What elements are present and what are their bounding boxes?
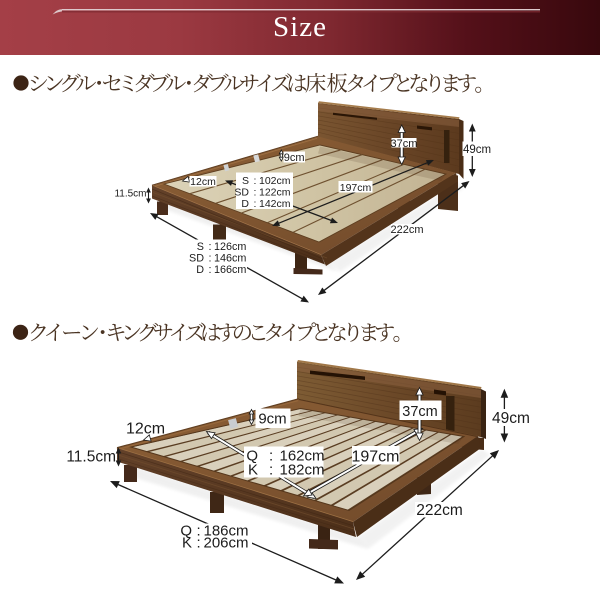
svg-text:K: K xyxy=(248,462,258,479)
svg-text:166cm: 166cm xyxy=(214,264,246,276)
svg-text:197cm: 197cm xyxy=(351,449,399,466)
svg-text:S: S xyxy=(242,175,249,187)
svg-text:SD: SD xyxy=(189,252,204,264)
svg-text:102cm: 102cm xyxy=(259,175,291,187)
svg-text:D: D xyxy=(241,198,249,210)
svg-text:9cm: 9cm xyxy=(258,411,286,428)
svg-text:37cm: 37cm xyxy=(391,138,418,150)
svg-text:49cm: 49cm xyxy=(463,144,491,156)
svg-text::: : xyxy=(197,535,201,552)
svg-text::: : xyxy=(209,264,212,276)
svg-text:12cm: 12cm xyxy=(126,421,165,438)
svg-text:9cm: 9cm xyxy=(284,152,305,164)
svg-text:197cm: 197cm xyxy=(340,182,372,194)
svg-text:222cm: 222cm xyxy=(416,502,463,519)
svg-text:206cm: 206cm xyxy=(204,535,249,552)
svg-text::: : xyxy=(209,241,212,253)
svg-text:146cm: 146cm xyxy=(214,252,246,264)
svg-text:37cm: 37cm xyxy=(402,404,437,420)
svg-text:S: S xyxy=(197,241,204,253)
svg-text:142cm: 142cm xyxy=(259,198,291,210)
svg-text:SD: SD xyxy=(234,187,249,199)
svg-text::: : xyxy=(209,252,212,264)
svg-text::: : xyxy=(254,187,257,199)
svg-text:49cm: 49cm xyxy=(492,410,530,427)
svg-text:11.5cm: 11.5cm xyxy=(66,449,116,466)
svg-text:126cm: 126cm xyxy=(214,241,246,253)
svg-text:K: K xyxy=(182,535,192,552)
svg-text::: : xyxy=(254,175,257,187)
svg-text:122cm: 122cm xyxy=(259,187,291,199)
svg-text:D: D xyxy=(196,264,204,276)
svg-text:11.5cm: 11.5cm xyxy=(114,189,146,200)
svg-text:12cm: 12cm xyxy=(190,176,216,188)
svg-text::: : xyxy=(269,462,273,479)
svg-text:182cm: 182cm xyxy=(280,462,325,479)
svg-text::: : xyxy=(254,198,257,210)
svg-text:222cm: 222cm xyxy=(390,224,423,236)
